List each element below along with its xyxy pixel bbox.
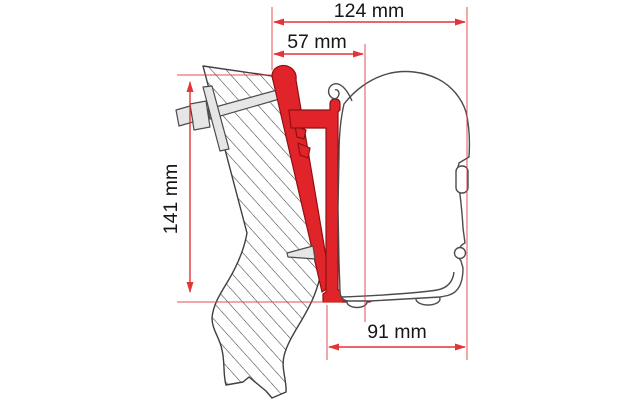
awning-side-knob bbox=[455, 248, 466, 259]
arrow-left-icon bbox=[328, 344, 339, 351]
awning-case bbox=[329, 72, 470, 308]
adapter-diagram-page: 124 mm 57 mm 141 mm 91 mm bbox=[0, 0, 640, 400]
arrow-right-icon bbox=[353, 51, 364, 58]
arrow-left-icon bbox=[273, 51, 284, 58]
bolt-nut bbox=[190, 101, 210, 130]
dimension-label-case-depth: 91 mm bbox=[367, 321, 427, 343]
adapter-technical-drawing: 124 mm 57 mm 141 mm 91 mm bbox=[0, 0, 640, 400]
arrow-left-icon bbox=[273, 19, 284, 26]
dimension-label-overall-depth: 124 mm bbox=[334, 0, 404, 22]
awning-case-outline bbox=[338, 72, 469, 301]
arrow-right-icon bbox=[455, 19, 466, 26]
dimension-91mm bbox=[328, 344, 466, 351]
awning-side-clip bbox=[456, 166, 468, 193]
dimension-label-bracket-height: 141 mm bbox=[160, 164, 182, 234]
arrow-right-icon bbox=[455, 344, 466, 351]
dimension-label-bracket-offset: 57 mm bbox=[287, 31, 347, 53]
arrow-up-icon bbox=[187, 81, 194, 92]
arrow-down-icon bbox=[187, 282, 194, 293]
